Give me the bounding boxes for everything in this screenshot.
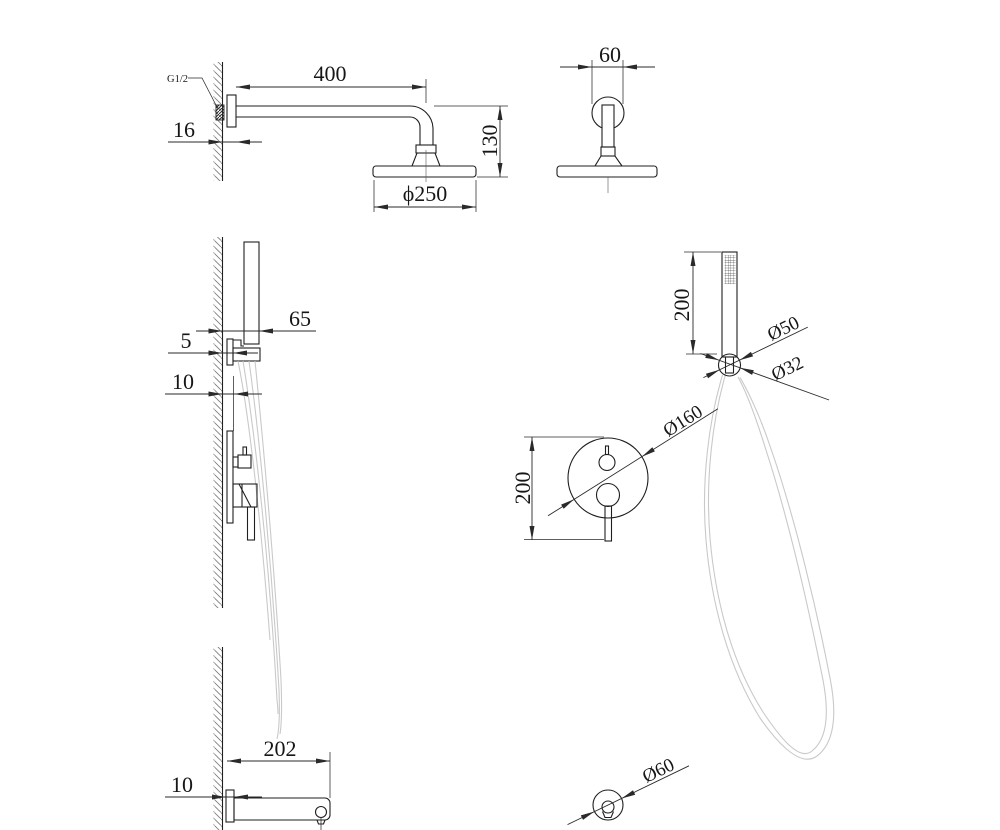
thread-size-label: G1/2 [167, 74, 188, 85]
shower-head-front [557, 166, 657, 177]
arrowhead [462, 205, 476, 210]
arrowhead [740, 368, 754, 375]
handle-hub-circle [597, 484, 620, 507]
valve-plate-side [227, 431, 233, 523]
arrowhead [316, 759, 330, 764]
arrowhead [578, 65, 592, 70]
drawing-sheet: 400 16 130 ϕ250 G1/2 [0, 0, 1000, 830]
arrowhead [236, 140, 250, 145]
arm-cone-front [595, 156, 622, 166]
arrowhead [233, 351, 247, 356]
arrowhead [412, 85, 426, 90]
dim-valve-height: 200 [510, 472, 535, 505]
arm-wall-plate [227, 95, 236, 127]
arrowhead [691, 252, 696, 266]
dim-arm-length: 400 [314, 61, 347, 86]
dim-handle-length: 200 [669, 289, 694, 322]
arrowhead [623, 65, 637, 70]
dim-plate-diameter: Ø160 [660, 401, 707, 441]
arrowhead [691, 340, 696, 354]
arrowhead [259, 329, 273, 334]
diverter-stem-side [243, 447, 247, 455]
shower-arm-outer [236, 106, 433, 145]
arrowhead [374, 205, 388, 210]
arrowhead [706, 370, 720, 378]
hose-line [249, 361, 279, 739]
arrowhead [581, 812, 595, 820]
arrowhead [236, 85, 250, 90]
arrowhead [234, 392, 248, 397]
holder-plate [227, 339, 233, 365]
dia-line-32 [700, 354, 829, 401]
dim-valve-plate-depth: 10 [172, 369, 194, 394]
dim-connector-diameter: Ø32 [768, 352, 807, 385]
arrowhead [227, 759, 241, 764]
spout-wall-plate [226, 790, 234, 822]
dim-holder-offset: 65 [289, 306, 311, 331]
dim-spout-length: 202 [264, 736, 297, 761]
arm-nut-front [601, 147, 615, 156]
wall-hatch [214, 62, 223, 181]
handle-lever [605, 506, 612, 541]
aerator-key-flats [603, 812, 614, 818]
spout-side-view: 202 10 [165, 736, 330, 830]
arrowhead [642, 447, 655, 457]
arrowhead [530, 437, 535, 451]
spray-face-grid [725, 255, 736, 284]
aerator-circle [316, 807, 327, 818]
handshower-side [244, 242, 259, 344]
spout-end-view: Ø60 [568, 754, 690, 824]
diverter-knob-circle [599, 455, 615, 471]
arrowhead [622, 790, 636, 798]
hose-loop-inner [708, 375, 826, 754]
dim-holder-plate-depth: 5 [181, 328, 192, 353]
dim-head-diameter: ϕ250 [403, 181, 448, 206]
dim-drop-height: 130 [477, 125, 502, 158]
arm-front [602, 105, 614, 147]
mixer-valve-front-view: 200 Ø160 [510, 401, 718, 541]
technical-drawing: 400 16 130 ϕ250 G1/2 [0, 0, 1000, 830]
dim-escutcheon-width: 60 [599, 42, 621, 67]
handle-diagonal-line [239, 484, 251, 507]
arrowhead [561, 499, 574, 509]
dim-holder-diameter: Ø50 [764, 312, 803, 345]
overhead-shower-front-view: 60 [557, 42, 657, 193]
overhead-shower-side-view: 400 16 130 ϕ250 G1/2 [167, 61, 508, 212]
dim-wall-plate-depth: 16 [173, 117, 195, 142]
arrowhead [498, 106, 503, 120]
dim-spout-diameter: Ø60 [639, 754, 678, 787]
arrowhead [739, 352, 753, 360]
spout-body [234, 798, 330, 820]
wall-hatch [214, 237, 223, 608]
arrowhead [234, 795, 248, 800]
holder-step [233, 340, 244, 346]
arrowhead [530, 526, 535, 540]
diverter-knob-side [238, 455, 251, 468]
hose-loop-outer [704, 375, 833, 759]
diverter-stem [606, 446, 609, 455]
knob-connector [233, 457, 238, 467]
arrowhead [498, 163, 503, 177]
handle-lever-side [248, 507, 255, 540]
handshower-front-view: 200 Ø50 Ø32 [669, 252, 834, 759]
shower-head [373, 166, 476, 177]
shower-arm-inner [236, 117, 420, 145]
dim-spout-plate-depth: 10 [171, 772, 193, 797]
wall-hatch [214, 647, 223, 830]
